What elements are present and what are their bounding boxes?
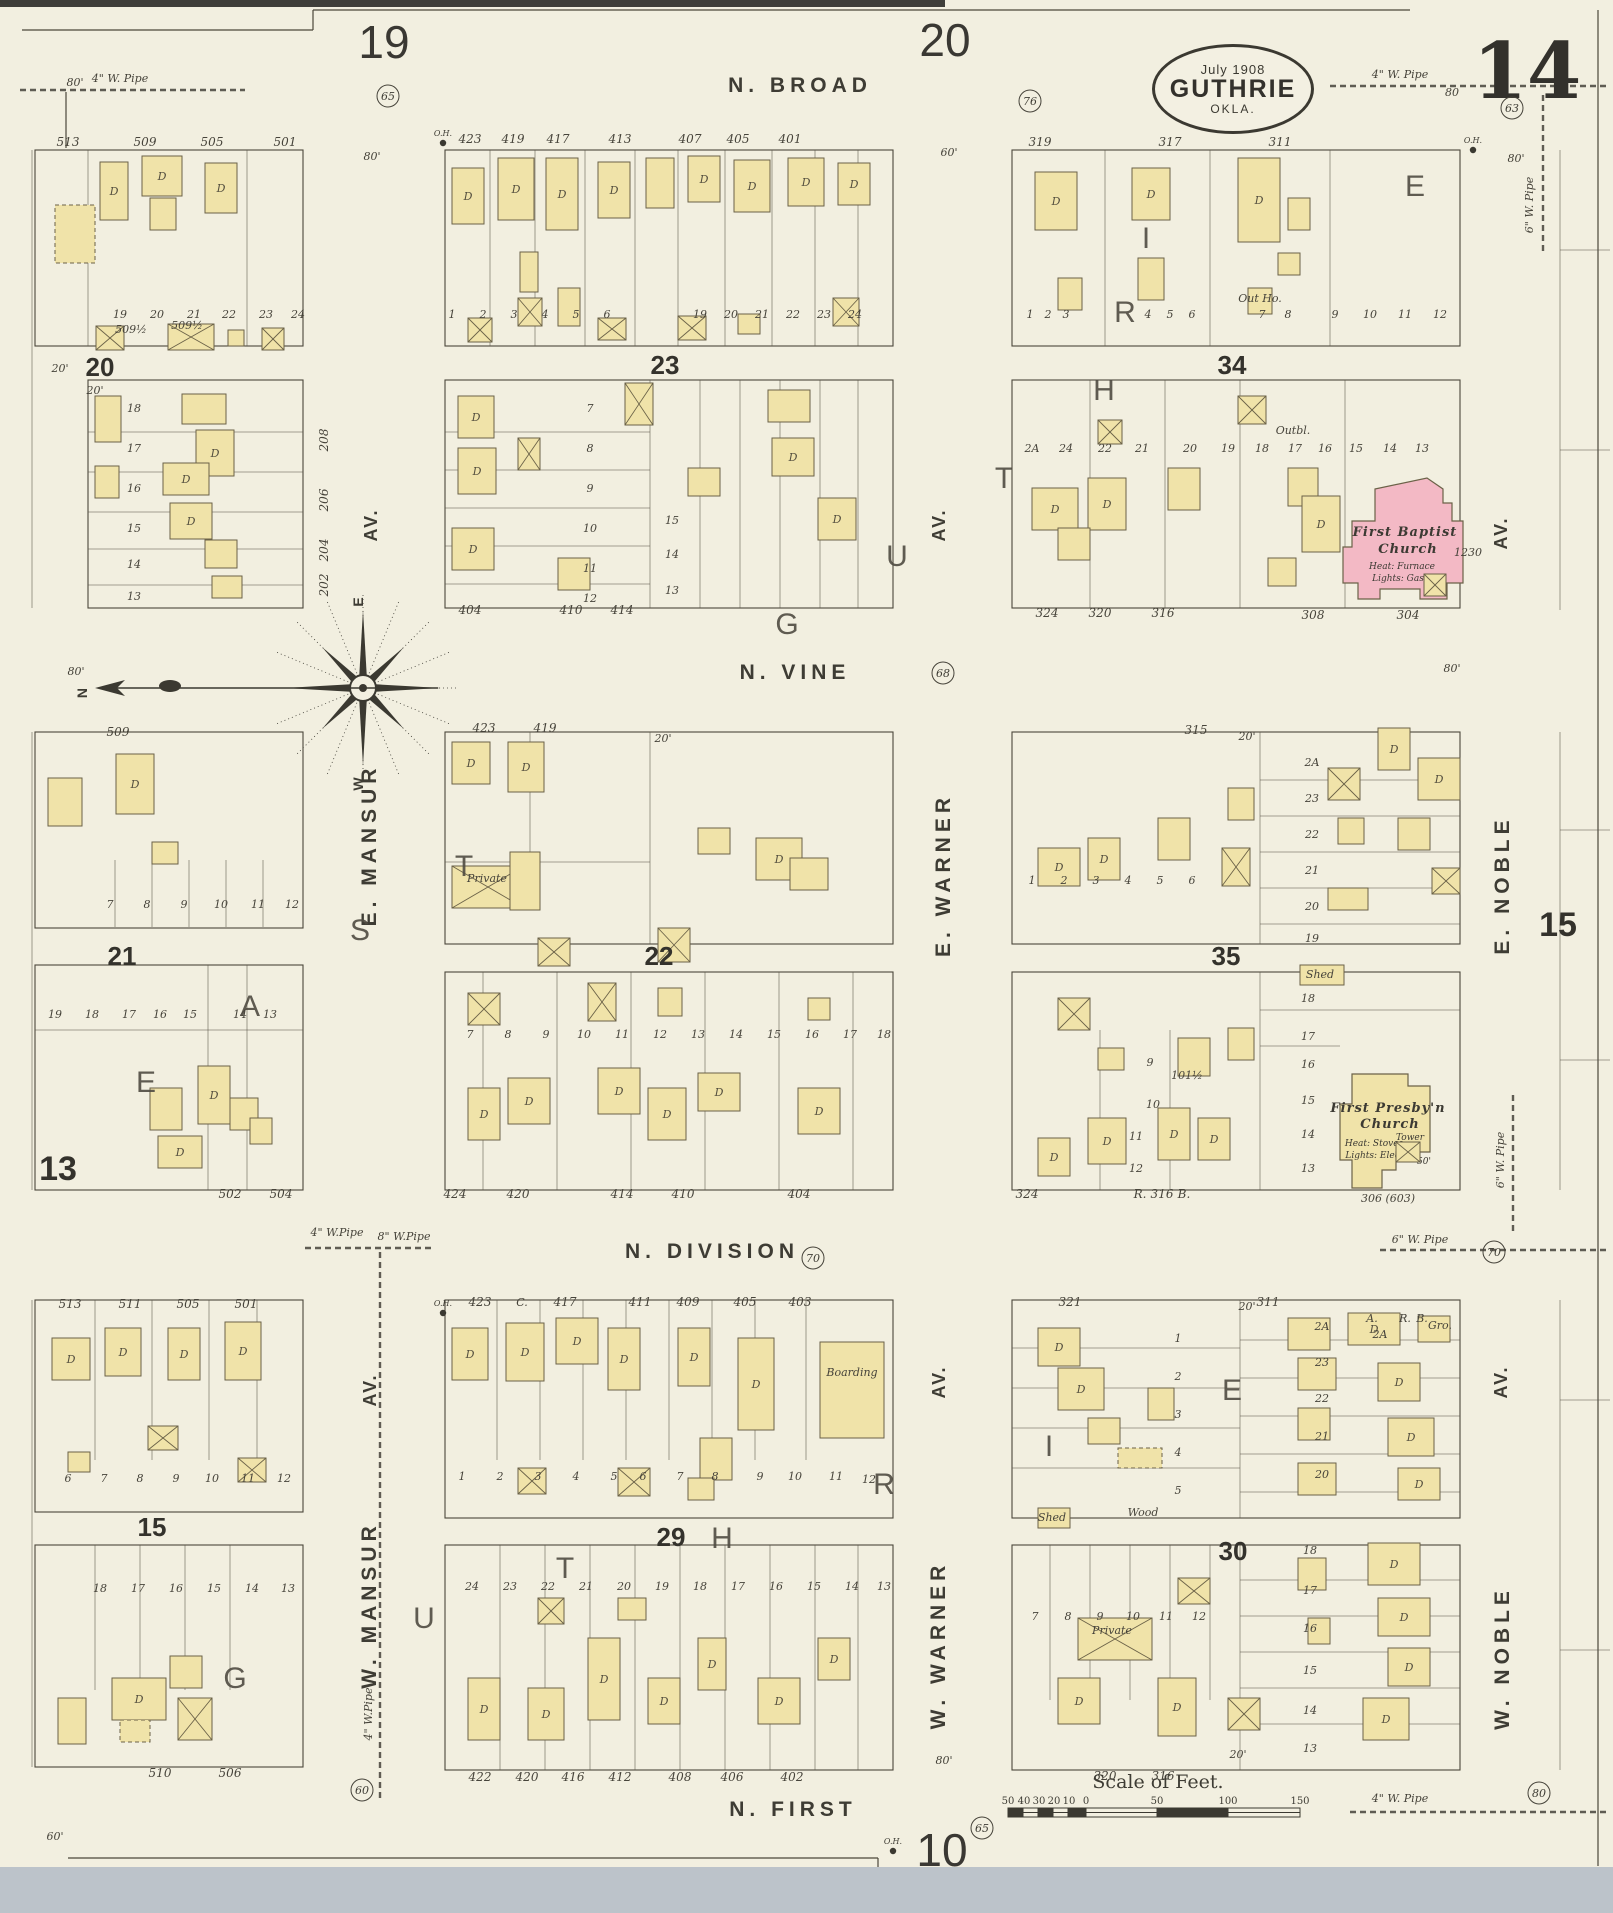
building-use-label: Outbl. [1276,424,1311,437]
adjacent-sheet-number: 14 [1473,26,1582,117]
lot-number: 20 [149,308,164,321]
block-number: 35 [1212,941,1241,971]
street-address: 406 [720,1770,744,1784]
street-address: 509 [107,725,130,739]
compass-north-label: N [74,688,90,698]
scale-tick-label: 50 [1151,1796,1164,1807]
scale-tick-label: 100 [1218,1796,1237,1807]
compass-ray-dotted [275,652,348,682]
compass-ray-dotted [378,694,451,724]
lot-number: 7 [107,898,114,911]
street-address: 319 [1029,135,1052,149]
lot-number: 16 [127,482,141,495]
dwelling-mark: D [471,411,481,424]
first-presbyterian-church-label: Heat: Stoves [1344,1139,1404,1149]
dwelling-mark: D [814,1105,824,1118]
city-block [445,380,893,608]
dwelling-mark: D [599,1673,609,1686]
block-number: 15 [138,1512,167,1542]
dwelling-mark: D [134,1693,144,1706]
lot-number: 6 [640,1470,647,1483]
map-canvas: DDDDDDDDDDDDDDDDDDDDDDDDDDDDDDDDDDDDDDDD… [0,0,1613,1913]
background-letter: G [223,1662,246,1695]
dwelling-building [1058,528,1090,560]
lot-number: 21 [1134,442,1149,455]
building-use-label: Wood [1128,1506,1159,1519]
street-address: 311 [1257,1295,1280,1309]
lot-number: 15 [767,1028,781,1041]
first-baptist-church-label: Lights: Gas [1371,574,1424,584]
lot-number: 3 [1063,308,1070,321]
background-letter: R [873,1468,895,1501]
lot-number: 6 [65,1472,72,1485]
dwelling-building [212,576,242,598]
dwelling-mark: D [521,761,531,774]
water-pipe-label: 4" W. Pipe [1371,1792,1429,1805]
dwelling-mark: D [118,1346,128,1359]
lot-number: 2 [1044,308,1052,321]
scale-tick-label: 50 [1002,1796,1015,1807]
water-pipe-label: 6" W. Pipe [1523,176,1536,233]
building-use-label: 2A [1372,1328,1388,1341]
lot-number: 4 [1124,874,1132,887]
compass-arrow-ornament [159,680,181,692]
dwelling-mark: D [801,176,811,189]
lot-number: 12 [653,1028,667,1041]
lot-number: 8 [137,1472,144,1485]
background-letter: T [556,1552,574,1585]
avenue-abbrev: AV. [361,508,381,541]
measurement-label: 20' [1228,1748,1246,1761]
lot-number: 2 [1174,1370,1182,1383]
dwelling-building [1278,253,1300,275]
measurement-label: 80' [935,1754,952,1767]
dwelling-mark: D [689,1351,699,1364]
lot-number: 23 [1304,792,1319,805]
utility-circle-number: 65 [975,1822,989,1835]
compass-ray-dotted [369,600,399,673]
water-pipe-label: 4" W. Pipe [91,72,149,85]
lot-number: 22 [785,308,800,321]
street-address: 420 [515,1770,539,1784]
scale-tick-label: 10 [1063,1796,1076,1807]
lot-number: 5 [611,1470,618,1483]
street-address: 316 [1152,606,1175,620]
scan-edge-bottom [0,1867,1613,1913]
lot-number: 7 [467,1028,474,1041]
dwelling-mark: D [472,465,482,478]
overhead-marker-dot [890,1848,896,1854]
street-address: 403 [788,1295,812,1309]
street-address: 504 [270,1187,293,1201]
lot-number: 14 [1383,442,1397,455]
dwelling-building [68,1452,90,1472]
background-letter: S [350,914,370,947]
block-number: 20 [86,352,115,382]
street-address: 324 [1016,1187,1039,1201]
lot-number: 18 [93,1582,107,1595]
dwelling-building [1138,258,1164,300]
utility-circle-number: 76 [1023,95,1037,108]
lot-number: 17 [131,1582,145,1595]
lot-number: 16 [769,1580,783,1593]
lot-number: 6 [1189,874,1196,887]
street-address: 416 [561,1770,585,1784]
compass-west-label: W [350,777,366,791]
lot-number: 22 [540,1580,555,1593]
dwelling-mark: D [238,1345,248,1358]
dwelling-mark: D [714,1086,724,1099]
lot-number: 7 [1259,308,1266,321]
lot-number: 8 [587,442,594,455]
dwelling-building [1058,278,1082,310]
dwelling-mark: D [1316,518,1326,531]
measurement-label: 80' [66,76,83,89]
lot-number: 14 [1301,1128,1315,1141]
lot-number: 1 [449,308,456,321]
lot-number: 1 [1029,874,1036,887]
dwelling-mark: D [209,1089,219,1102]
dwelling-building [1168,468,1200,510]
lot-number: 10 [1146,1098,1160,1111]
lot-number: 23 [816,308,831,321]
lot-number: 13 [1301,1162,1315,1175]
street-name: N. DIVISION [625,1240,799,1263]
lot-number: 2 [479,308,487,321]
street-name: W. NOBLE [1491,1586,1514,1730]
dwelling-mark: D [788,451,798,464]
dwelling-mark: D [1054,1341,1064,1354]
dwelling-mark: D [479,1108,489,1121]
lot-number: 19 [48,1008,62,1021]
dwelling-building [808,998,830,1020]
measurement-label: 80 [1445,86,1459,99]
lot-number: 18 [877,1028,891,1041]
dwelling-mark: D [1209,1133,1219,1146]
lot-number: 17 [1288,442,1302,455]
lot-number: 10 [583,522,597,535]
dwelling-mark: D [1399,1611,1409,1624]
dwelling-building [182,394,226,424]
street-address: 304 [1397,608,1420,622]
lot-number: 10 [788,1470,802,1483]
lot-number: 14 [127,558,141,571]
street-address: 505 [201,135,224,149]
dwelling-building [646,158,674,208]
background-letter: E [136,1066,156,1099]
utility-circle-number: 60 [355,1784,369,1797]
street-address: 414 [610,603,634,617]
lot-number: 13 [665,584,679,597]
street-address: 321 [1059,1295,1082,1309]
lot-number: 23 [502,1580,517,1593]
dwelling-mark: D [181,473,191,486]
background-letter: I [1045,1430,1053,1463]
street-address: 316 [1151,1187,1174,1201]
lot-number: 18 [1301,992,1315,1005]
street-address: R. [1133,1187,1147,1201]
lot-number: 17 [843,1028,857,1041]
street-address: 315 [1185,723,1208,737]
dwelling-mark: D [541,1708,551,1721]
street-address: 511 [119,1297,142,1311]
scale-tick-label: 40 [1018,1796,1031,1807]
dwelling-building [1118,1448,1162,1468]
dwelling-building [688,468,720,496]
lot-number: 12 [583,592,597,605]
street-name: E. NOBLE [1491,815,1514,954]
dwelling-mark: D [662,1108,672,1121]
dwelling-building [698,828,730,854]
dwelling-mark: D [1146,188,1156,201]
dwelling-mark: D [1050,503,1060,516]
measurement-label: 80' [1507,152,1524,165]
street-address: 202 [317,574,331,598]
block-number: 22 [645,941,674,971]
lot-number: 9 [1332,308,1339,321]
dwelling-mark: D [465,1348,475,1361]
street-address: 423 [472,721,496,735]
compass-ray-dotted [275,694,348,724]
dwelling-building [510,852,540,910]
dwelling-mark: D [109,185,119,198]
block-number: 23 [651,350,680,380]
compass-east-label: E [350,597,366,606]
street-address: 402 [780,1770,804,1784]
lot-number: 15 [807,1580,821,1593]
lot-number: 14 [665,548,679,561]
lot-number: 5 [1157,874,1164,887]
street-address: 419 [533,721,557,735]
dwelling-building [520,252,538,292]
street-address: 407 [678,132,702,146]
lot-number: 22 [221,308,236,321]
lot-number: 12 [1129,1162,1143,1175]
street-address: 410 [671,1187,695,1201]
dwelling-mark: D [659,1695,669,1708]
dwelling-building [618,1598,646,1620]
lot-number: 20 [1182,442,1197,455]
dwelling-mark: D [1051,195,1061,208]
lot-number: 3 [1093,874,1100,887]
overhead-marker-dot [440,1310,446,1316]
overhead-marker-dot [1470,147,1476,153]
lot-number: 19 [1221,442,1235,455]
lot-number: 7 [1032,1610,1039,1623]
lot-number: 3 [535,1470,542,1483]
building-use-label: C. [516,1296,528,1309]
background-letter: E [1405,170,1425,203]
lot-number: 10 [577,1028,591,1041]
building-use-label: B. [1415,1312,1428,1325]
street-address: 506 [219,1766,242,1780]
lot-number: 19 [113,308,127,321]
dwelling-mark: D [175,1146,185,1159]
utility-circle-number: 68 [936,667,950,680]
dwelling-building [48,778,82,826]
lot-number: 24 [290,308,305,321]
background-letter: U [886,540,908,573]
scale-caption: Scale of Feet. [1092,1771,1223,1793]
map-title-city: GUTHRIE [1170,77,1297,102]
street-address: 417 [546,132,570,146]
lot-number: 13 [281,1582,295,1595]
measurement-label: 20' [653,732,671,745]
measurement-label: 60' [940,146,957,159]
lot-number: 21 [1314,1430,1329,1443]
lot-number: 15 [665,514,679,527]
lot-number: 16 [1301,1058,1315,1071]
sanborn-map-sheet: DDDDDDDDDDDDDDDDDDDDDDDDDDDDDDDDDDDDDDDD… [0,0,1613,1913]
street-address: 510 [149,1766,172,1780]
street-address: B. [1177,1187,1191,1201]
dwelling-building [1088,1418,1120,1444]
building-use-label: Gro. [1428,1319,1452,1332]
lot-number: 17 [1303,1584,1317,1597]
dwelling-mark: D [829,1653,839,1666]
lot-number: 5 [1175,1484,1182,1497]
street-address: 208 [317,428,331,452]
water-pipe-label: 4" W.Pipe [362,1687,375,1741]
utility-circle-number: 63 [1505,102,1519,115]
dwelling-mark: D [1381,1713,1391,1726]
street-address: 320 [1089,606,1112,620]
background-letter: H [1093,374,1115,407]
lot-number: 11 [583,562,597,575]
lot-number: 5 [1167,308,1174,321]
lot-number: 20 [616,1580,631,1593]
lot-number: 17 [127,442,141,455]
overhead-marker-label: O.H. [884,1837,902,1846]
lot-number: 4 [572,1470,580,1483]
lot-number: 7 [101,1472,108,1485]
scale-tick-label: 150 [1290,1796,1309,1807]
lot-number: 18 [85,1008,99,1021]
lot-number: 23 [1314,1356,1329,1369]
street-address: 420 [506,1187,530,1201]
lot-number: 16 [1303,1622,1317,1635]
lot-number: 16 [805,1028,819,1041]
building-use-label: Boarding [825,1366,877,1379]
adjacent-sheet-number: 15 [1539,906,1577,944]
dwelling-building [1288,198,1310,230]
measurement-label: 60' [46,1830,63,1843]
street-name: N. FIRST [729,1798,857,1821]
dwelling-mark: D [1254,194,1264,207]
street-name: N. VINE [740,661,851,684]
street-address: 311 [1269,135,1292,149]
building-use-label: A. [1365,1312,1377,1325]
lot-number: 24 [847,308,862,321]
block-number: 34 [1218,350,1247,380]
lot-number: 5 [573,308,580,321]
lot-number: 3 [511,308,518,321]
lot-number: 9 [587,482,594,495]
avenue-abbrev: AV. [1491,1365,1511,1398]
lot-number: 18 [1255,442,1269,455]
lot-number: 8 [144,898,151,911]
lot-number: 1 [1027,308,1034,321]
street-address: 509 [134,135,157,149]
dwelling-mark: D [210,447,220,460]
street-address: 409 [676,1295,700,1309]
dwelling-building [55,205,95,263]
dwelling-building [768,390,810,422]
first-presbyterian-church-label: Church [1360,1117,1419,1132]
lot-number: 2 [1060,874,1068,887]
lot-number: 6 [604,308,611,321]
lot-number: 7 [677,1470,684,1483]
dwelling-building [95,466,119,498]
city-block [1012,150,1460,346]
lot-number: 15 [127,522,141,535]
building-use-label: 101½ [1171,1069,1203,1082]
lot-number: 20 [1314,1468,1329,1481]
street-name: N. BROAD [728,74,872,97]
dwelling-mark: D [468,543,478,556]
measurement-label: 20' [85,384,103,397]
avenue-abbrev: AV. [360,1373,380,1406]
street-address: 419 [501,132,525,146]
street-address: 404 [458,603,482,617]
dwelling-mark: D [774,853,784,866]
lot-number: 24 [1058,442,1073,455]
measurement-label: 20' [1237,1300,1255,1313]
dwelling-building [95,396,121,442]
dwelling-mark: D [609,184,619,197]
dwelling-building [1148,1388,1174,1420]
dwelling-mark: D [179,1348,189,1361]
dwelling-mark: D [130,778,140,791]
utility-circle-number: 70 [1487,1246,1501,1259]
first-baptist-church-label: First Baptist [1352,525,1458,540]
lot-number: 11 [1129,1130,1143,1143]
dwelling-mark: D [1414,1478,1424,1491]
lot-number: 12 [1433,308,1447,321]
avenue-abbrev: AV. [1491,516,1511,549]
background-letter: E [1222,1374,1242,1407]
water-pipe-label: 4" W.Pipe [310,1226,364,1239]
lot-number: 16 [169,1582,183,1595]
lot-number: 14 [245,1582,259,1595]
building-use-label: Shed [1306,968,1334,981]
lot-number: 11 [615,1028,629,1041]
scale-tick-label: 30 [1033,1796,1046,1807]
street-address: 513 [57,135,80,149]
lot-number: 11 [241,1472,255,1485]
dwelling-building [58,1698,86,1744]
street-address: 424 [443,1187,467,1201]
lot-number: 14 [1303,1704,1317,1717]
dwelling-building [228,330,244,346]
street-address: 405 [726,132,750,146]
lot-number: 21 [1304,864,1319,877]
lot-number: 10 [1126,1610,1140,1623]
measurement-label: 20' [50,362,68,375]
dwelling-building [170,1656,202,1688]
lot-number: 15 [207,1582,221,1595]
dwelling-building [1228,788,1254,820]
dwelling-mark: D [1389,1558,1399,1571]
first-presbyterian-church-label: Lights: Elec. [1344,1151,1402,1161]
lot-number: 22 [1304,828,1319,841]
compass-ray-dotted [327,703,357,776]
lot-number: 8 [1065,1610,1072,1623]
lot-number: 9 [181,898,188,911]
lot-number: 12 [277,1472,291,1485]
street-address: 501 [235,1297,258,1311]
compass-ray-dotted [327,600,357,673]
